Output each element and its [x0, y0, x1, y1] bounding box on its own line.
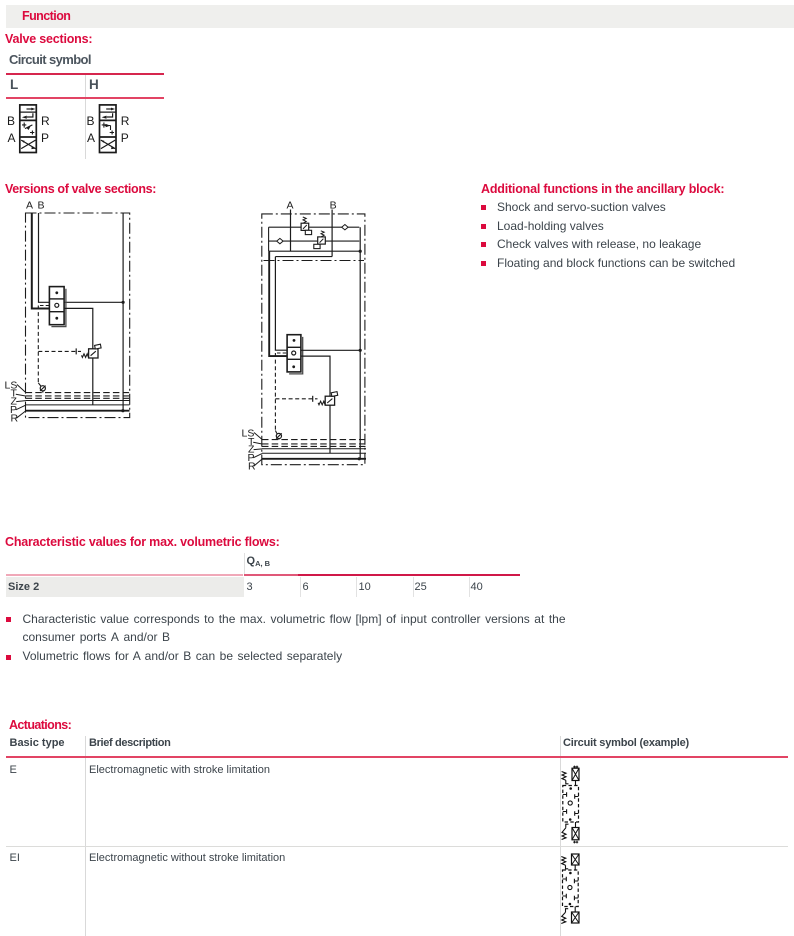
svg-text:R: R [41, 114, 50, 128]
svg-text:R: R [248, 461, 256, 473]
svg-text:P: P [41, 131, 49, 145]
svg-text:B: B [330, 200, 337, 212]
svg-text:B: B [38, 200, 45, 212]
svg-text:R: R [11, 413, 19, 425]
svg-text:P: P [121, 131, 129, 145]
svg-text:A: A [8, 131, 16, 145]
svg-text:R: R [121, 114, 130, 128]
svg-text:B: B [87, 114, 95, 128]
svg-text:A: A [26, 200, 33, 212]
svg-text:B: B [7, 114, 15, 128]
svg-text:A: A [87, 131, 95, 145]
